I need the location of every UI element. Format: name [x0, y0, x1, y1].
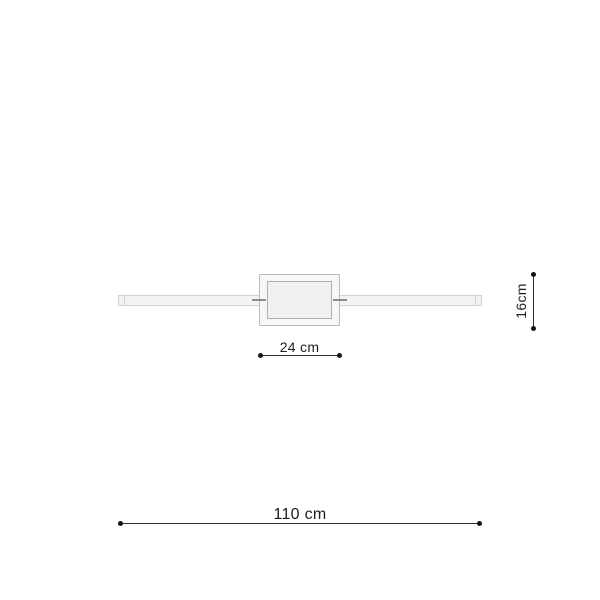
- width-dimension-line: [260, 355, 339, 356]
- total-length-dimension-line: [120, 523, 480, 524]
- lamp-mount-box: [259, 274, 340, 326]
- lamp-bar-left-cap: [124, 296, 125, 305]
- bar-box-joint-left-mark: [252, 299, 266, 301]
- height-dimension-line: [533, 274, 534, 328]
- height-dimension-label: 16cm: [514, 280, 528, 322]
- lamp-mount-box-inner: [267, 281, 332, 319]
- width-dimension-endpoint-dot-right: [337, 353, 342, 358]
- width-dimension-endpoint-dot-left: [258, 353, 263, 358]
- product-dimension-diagram: 24 cm 16cm 110 cm: [0, 0, 600, 600]
- total-length-dimension-endpoint-dot-left: [118, 521, 123, 526]
- height-dimension-endpoint-dot-top: [531, 272, 536, 277]
- total-length-dimension-endpoint-dot-right: [477, 521, 482, 526]
- lamp-bar-right-cap: [475, 296, 476, 305]
- total-length-dimension-label: 110 cm: [120, 507, 480, 523]
- height-dimension-endpoint-dot-bottom: [531, 326, 536, 331]
- width-dimension-label: 24 cm: [260, 340, 339, 354]
- bar-box-joint-right-mark: [333, 299, 347, 301]
